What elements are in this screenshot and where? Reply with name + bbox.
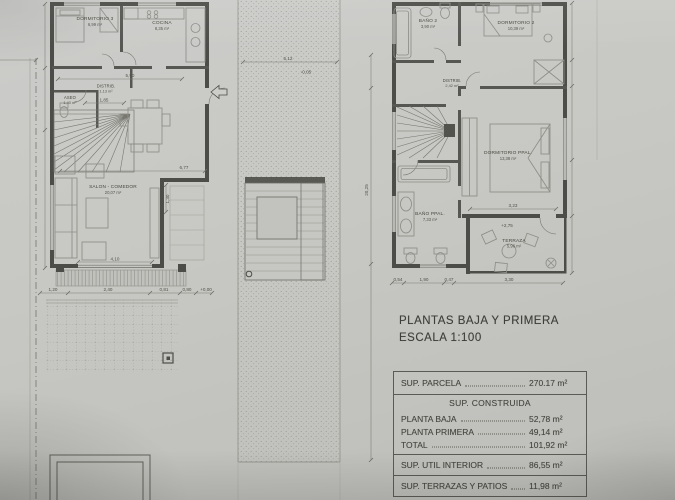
dim-label: 0,47 <box>445 277 454 282</box>
total-value: 101,92 m² <box>529 440 579 450</box>
room-label-bano-ppal: BAÑO PPAL. <box>415 210 445 217</box>
room-area-dormitorio2: 10,39 m² <box>508 26 525 31</box>
porch-column <box>178 264 186 272</box>
room-area-aseo: 1,40 m² <box>63 100 77 105</box>
planta-primera-value: 49,14 m² <box>529 427 579 437</box>
drawing-scale: ESCALA 1:100 <box>399 330 559 347</box>
dim-label: 1,20 <box>49 287 58 292</box>
dim-label: 1,90 <box>420 277 429 282</box>
ground-floor-plan <box>50 2 227 286</box>
table-section-construida: SUP. CONSTRUIDA PLANTA BAJA 52,78 m² PLA… <box>394 394 586 454</box>
dotted-leader <box>465 385 525 386</box>
dim-label: 2,40 <box>104 287 113 292</box>
parcela-value: 270.17 m² <box>529 378 579 388</box>
dim-label: 4,10 <box>111 257 120 262</box>
ff-staircase <box>397 106 455 158</box>
dotted-leader <box>511 488 525 489</box>
dim-label: 0,81 <box>160 287 169 292</box>
construida-header: SUP. CONSTRUIDA <box>394 395 586 412</box>
gf-porch-slab <box>56 270 186 286</box>
dim-label: 20,25 <box>364 184 369 196</box>
dim-label: 6,77 <box>180 165 189 170</box>
util-label: SUP. UTIL INTERIOR <box>401 460 483 470</box>
total-label: TOTAL <box>401 440 428 450</box>
dim-label: +0,00 <box>200 287 212 292</box>
room-area-cocina: 8,35 m² <box>155 26 170 31</box>
dim-label: 5,90 <box>126 73 135 78</box>
table-row-total: TOTAL 101,92 m² <box>394 438 586 451</box>
terrazas-label: SUP. TERRAZAS Y PATIOS <box>401 481 507 491</box>
room-label-bano2: BAÑO 2 <box>419 17 438 24</box>
room-area-bano-ppal: 7,33 m² <box>423 217 438 222</box>
dotted-leader <box>478 434 525 435</box>
room-area-ff-distrib: 2,42 m² <box>445 83 459 88</box>
terrazas-value: 11,98 m² <box>529 481 579 491</box>
dim-label: 0,80 <box>183 287 192 292</box>
pool-outline <box>50 455 150 500</box>
table-row-parcela: SUP. PARCELA 270.17 m² <box>394 372 586 394</box>
gf-furniture <box>55 8 205 260</box>
dim-label: 1,85 <box>100 98 109 103</box>
room-area-dormitorio3: 6,99 m² <box>88 22 103 27</box>
areas-table: SUP. PARCELA 270.17 m² SUP. CONSTRUIDA P… <box>393 371 587 497</box>
dotted-leader <box>432 447 525 448</box>
dotted-leader <box>487 467 525 468</box>
patio <box>238 0 340 500</box>
dim-label: 3,23 <box>509 203 518 208</box>
room-area-dormitorio-ppal: 13,38 m² <box>500 156 517 161</box>
table-row-util: SUP. UTIL INTERIOR 86,55 m² <box>394 454 586 475</box>
floor-plan-photo: DORMITORIO 3 6,99 m² COCINA 8,35 m² DIST… <box>0 0 675 500</box>
dotted-leader <box>461 421 525 422</box>
planta-baja-value: 52,78 m² <box>529 414 579 424</box>
title-block: PLANTAS BAJA Y PRIMERA ESCALA 1:100 <box>399 313 559 346</box>
dim-label: 1,30 <box>165 194 170 203</box>
table-row-terrazas: SUP. TERRAZAS Y PATIOS 11,98 m² <box>394 475 586 496</box>
dim-label: 0,54 <box>394 277 403 282</box>
ff-windows <box>393 3 566 267</box>
planta-baja-label: PLANTA BAJA <box>401 414 457 424</box>
room-area-salon: 20,07 m² <box>105 190 122 195</box>
room-area-gf-distrib: 1,13 m² <box>99 89 113 94</box>
entrance-arrow-icon <box>211 86 227 99</box>
gf-staircase <box>54 110 134 172</box>
planta-primera-label: PLANTA PRIMERA <box>401 427 474 437</box>
gf-windows <box>51 3 176 267</box>
pergola-grid <box>46 300 178 372</box>
table-row-planta-primera: PLANTA PRIMERA 49,14 m² <box>394 425 586 438</box>
room-area-bano2: 3,90 m² <box>421 24 436 29</box>
ff-door-arcs <box>403 48 556 234</box>
porch-column <box>56 264 64 272</box>
gf-side-steps <box>170 186 204 260</box>
patio-stair-structure <box>245 177 325 280</box>
util-value: 86,55 m² <box>529 460 579 470</box>
dim-label: 3,30 <box>505 277 514 282</box>
level-label: -0,05 <box>301 70 312 75</box>
ff-furniture <box>394 3 564 273</box>
table-row-planta-baja: PLANTA BAJA 52,78 m² <box>394 412 586 425</box>
first-floor-plan <box>392 2 567 274</box>
level-label: +2,75 <box>501 223 513 228</box>
drawing-title: PLANTAS BAJA Y PRIMERA <box>399 313 559 330</box>
dim-label: 5,12 <box>284 56 293 61</box>
parcela-label: SUP. PARCELA <box>401 378 461 388</box>
room-area-terraza: 5,96 m² <box>507 244 522 249</box>
